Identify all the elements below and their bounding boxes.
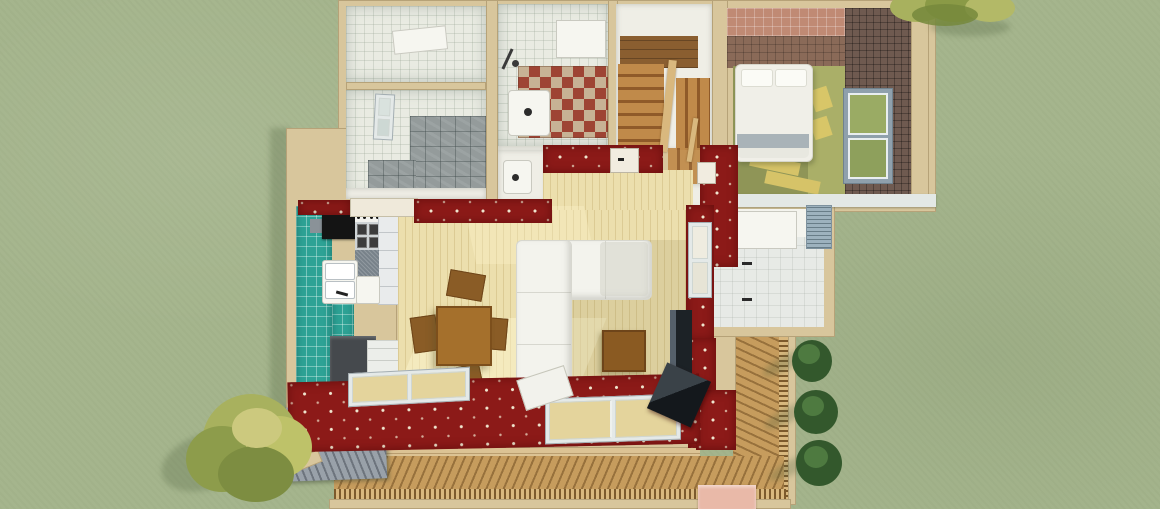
utility-wall (346, 82, 486, 90)
kitchen-north-wall (298, 200, 350, 215)
hallway-floor (543, 170, 693, 210)
window-glass (848, 138, 888, 180)
closet-cabinet (733, 211, 797, 249)
foliage (802, 396, 824, 416)
deck-right (733, 334, 779, 462)
window-glass (411, 371, 467, 400)
sink-basin-2 (356, 276, 380, 304)
hall-door-opening (610, 148, 639, 173)
bush-1 (778, 338, 848, 386)
tree-northeast (890, 0, 1020, 40)
deck-step (698, 485, 756, 509)
window-glass (549, 400, 612, 440)
floor-plan-render (0, 0, 1160, 509)
cooktop (322, 215, 356, 239)
laundry-window (373, 94, 395, 141)
south-window-left (348, 367, 470, 407)
foliage (218, 446, 294, 502)
coffee-table (602, 330, 646, 372)
window-glass (692, 262, 708, 295)
burner (357, 237, 367, 248)
sink-faucet (524, 108, 532, 116)
sink-basin (325, 281, 355, 299)
bush-2 (780, 388, 850, 438)
wc-faucet (512, 174, 519, 181)
window-glass (692, 226, 708, 259)
shower-drain (512, 60, 519, 67)
window-glass (378, 98, 391, 116)
bathroom-cabinet (556, 20, 606, 58)
hall-north-wall (543, 145, 663, 173)
foliage (798, 344, 820, 364)
bedroom-window (843, 88, 893, 184)
east-door-opening (697, 162, 716, 184)
window-glass (352, 374, 408, 403)
dining-table (436, 306, 492, 366)
door-handle-mark (742, 298, 752, 301)
foliage (804, 446, 828, 468)
sofa-shaded-cushion (600, 242, 648, 296)
wall-bath-west (486, 0, 498, 212)
window-glass (848, 93, 888, 135)
bush-3 (784, 438, 854, 490)
tree-southwest (170, 386, 320, 509)
foliage (232, 408, 282, 448)
closet-window-shutters (806, 205, 832, 249)
bed-pillow (775, 69, 807, 87)
door-handle (618, 158, 624, 161)
door-handle-mark (742, 262, 752, 265)
stair-flight-upper (618, 64, 664, 148)
east-interior-window (688, 222, 712, 298)
kitchen-door-opening (350, 198, 418, 217)
bed-foot-frame (737, 134, 809, 148)
bed-pillow (741, 69, 773, 87)
laundry-stone-floor (410, 116, 486, 196)
foliage (912, 4, 978, 26)
window-glass (377, 118, 390, 136)
sink-basin (325, 263, 355, 280)
burner (357, 224, 367, 235)
bed-footer (737, 148, 809, 158)
living-north-wall (414, 199, 552, 223)
